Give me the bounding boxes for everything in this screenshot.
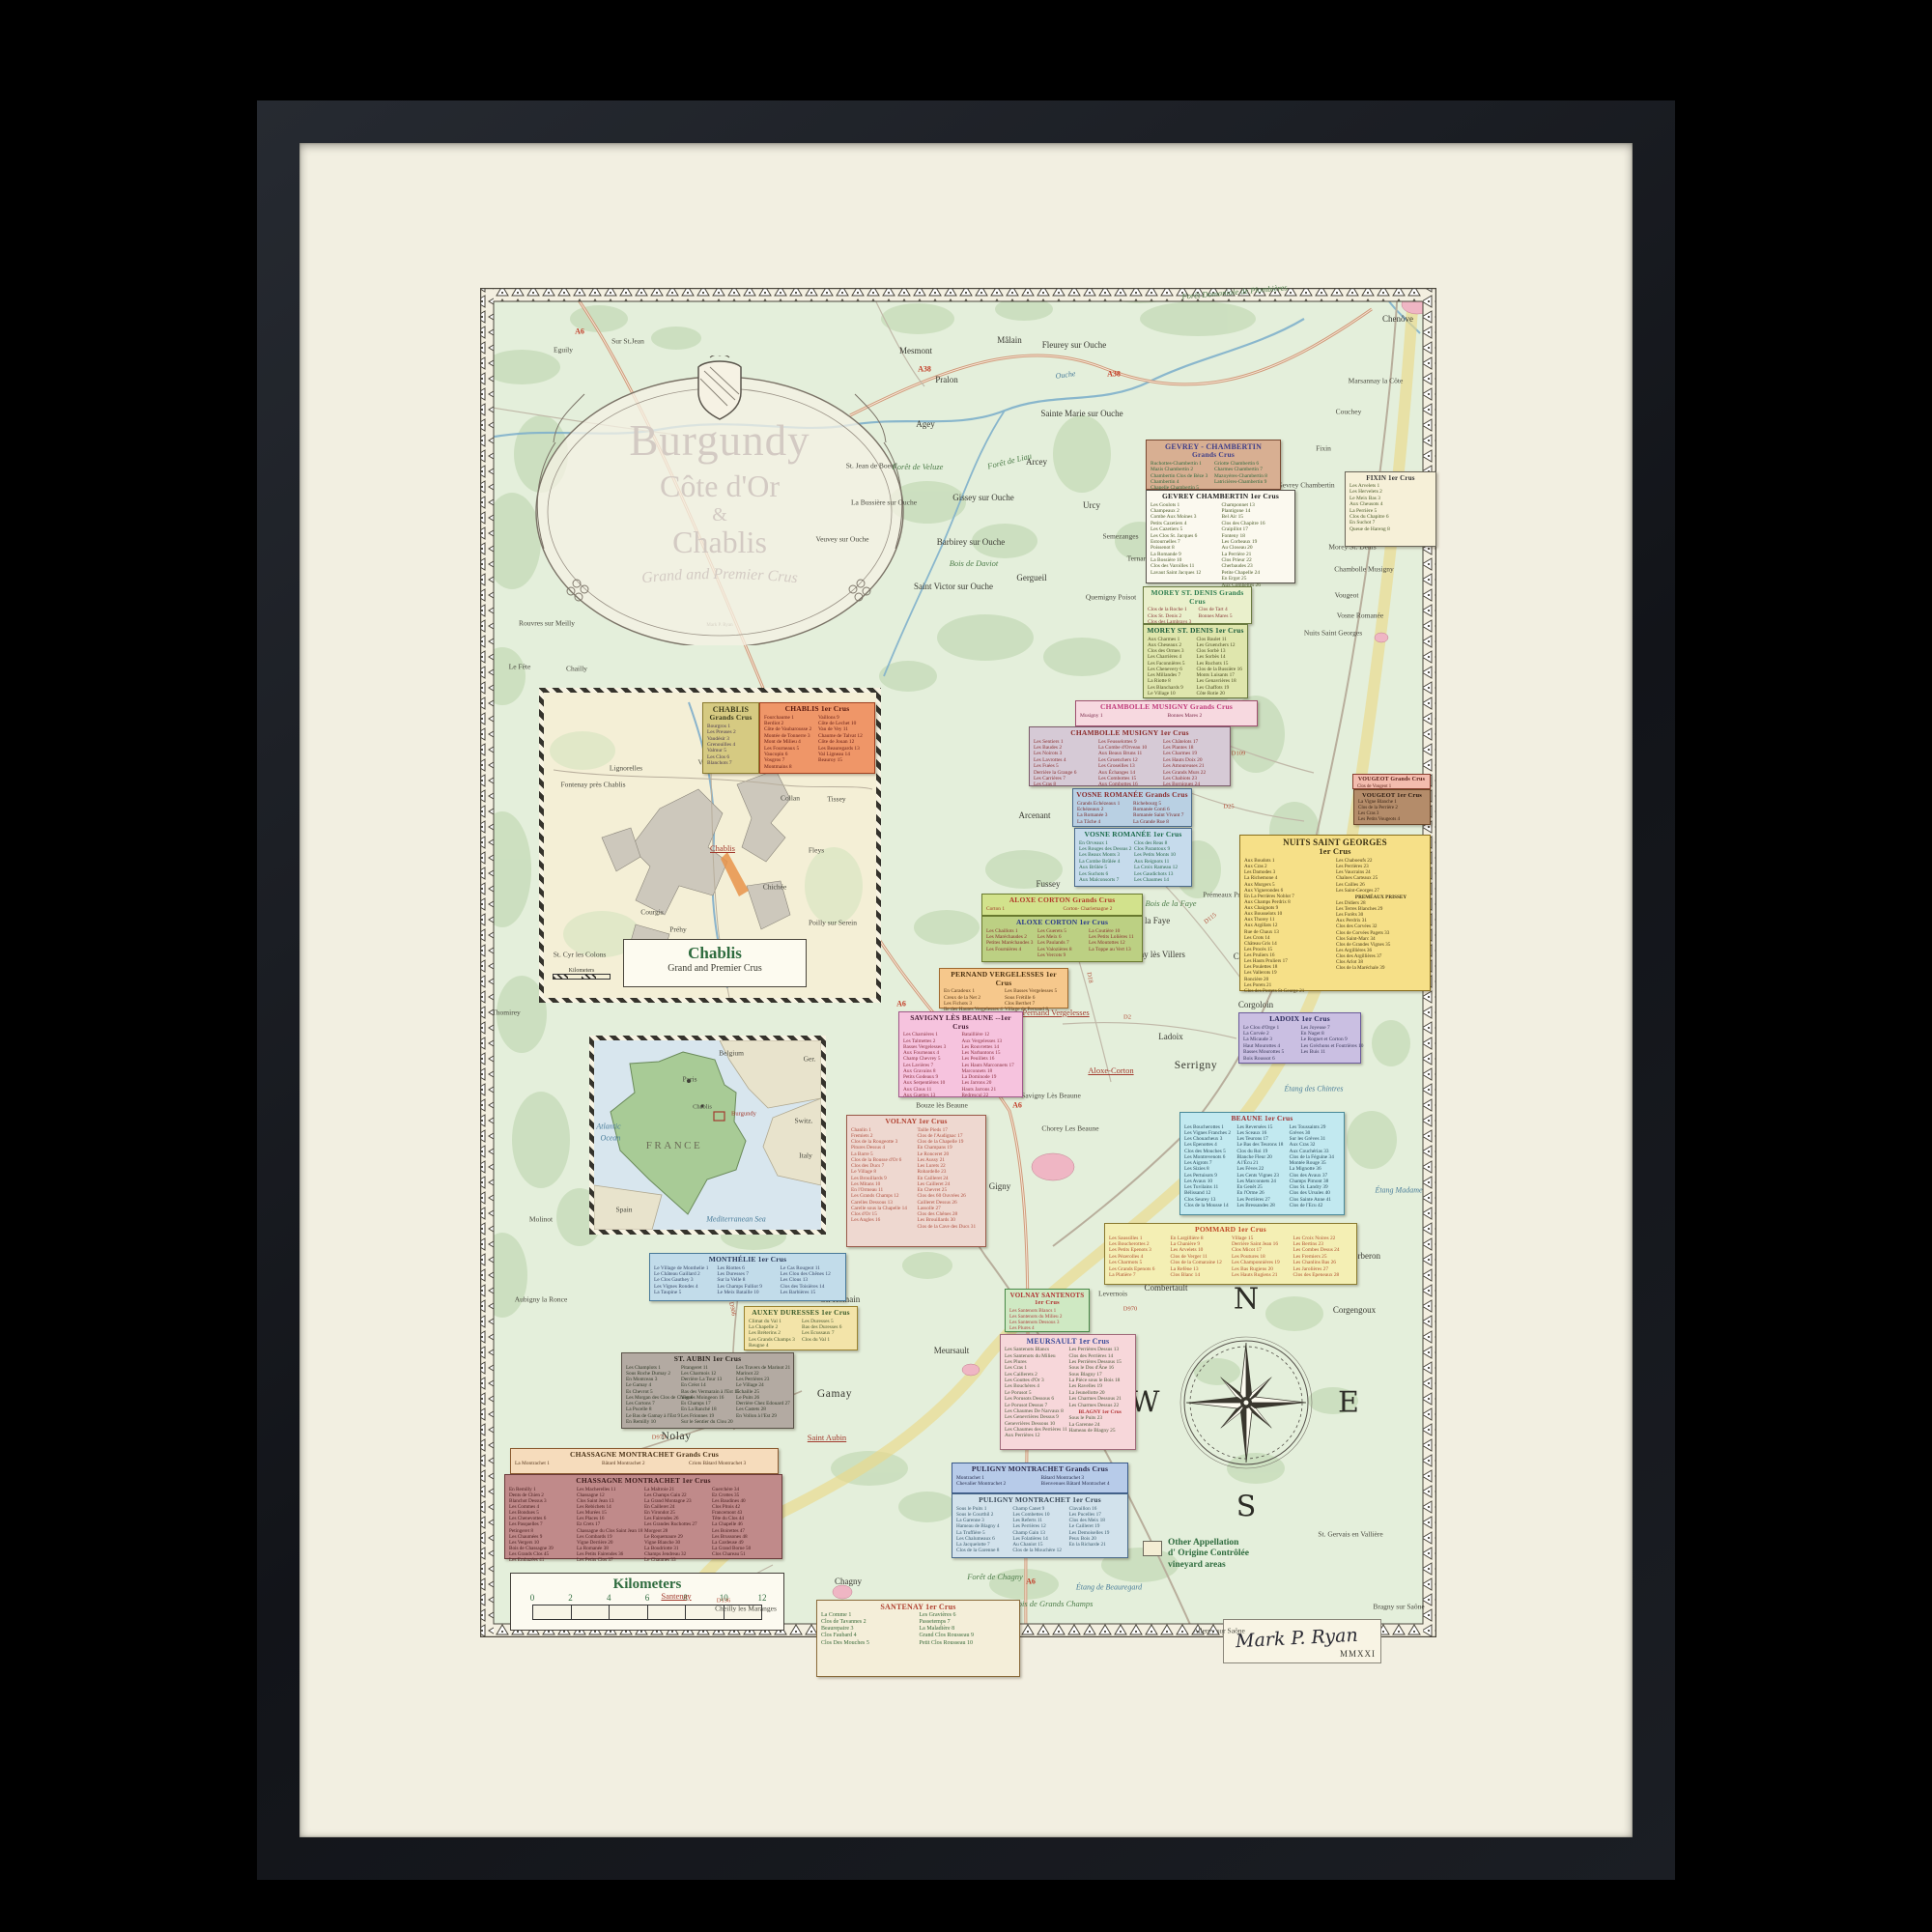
- cru-box-savigny-les-beaune-1er-crus: SAVIGNY LÈS BEAUNE --1er CrusLes Charniè…: [898, 1011, 1023, 1097]
- cru-box-beaune-1er-crus: BEAUNE 1er CrusLes Boucherottes 1Les Vig…: [1179, 1112, 1345, 1215]
- cru-entry: Corton- Charlemagne 2: [1064, 906, 1139, 912]
- cru-entry: Bois Roussot 6: [1243, 1056, 1299, 1062]
- cru-entry: La Platière 7: [1109, 1272, 1169, 1278]
- cru-entry: Queue de Hareng 8: [1350, 526, 1432, 532]
- cru-entry: Les Borniques 24: [1163, 781, 1226, 787]
- cru-entry: Les Saint-Georges 27: [1336, 888, 1426, 894]
- cru-box-meursault-1er-crus: MEURSAULT 1er CrusLes Santenots BlancsLe…: [1000, 1334, 1136, 1450]
- cru-box-title: BEAUNE 1er Crus: [1183, 1115, 1341, 1123]
- cru-box-gevrey-chambertin-1er-crus: GEVREY CHAMBERTIN 1er CrusLes Goulots 1C…: [1146, 490, 1295, 583]
- cru-box-aloxe-corton-grands-crus: ALOXE CORTON Grands CrusCorton 1Corton- …: [981, 894, 1143, 916]
- cru-entry: Aux Combottes 16: [1098, 781, 1161, 787]
- cru-entry: Les Charmes Dessus 22: [1069, 1403, 1132, 1408]
- cru-box-title: PULIGNY MONTRACHET Grands Crus: [955, 1465, 1124, 1474]
- cru-box-title: FIXIN 1er Crus: [1349, 474, 1433, 482]
- cru-box-auxey-duresses-1er-crus: AUXEY DURESSES 1er CrusClimat du Val 1La…: [744, 1306, 858, 1350]
- cru-box-title: ST. AUBIN 1er Crus: [625, 1355, 790, 1364]
- cru-box-fixin-1er-crus: FIXIN 1er CrusLes Arvelets 1Les Hervelet…: [1345, 471, 1436, 547]
- cru-entry: Hameau de Blagny 25: [1069, 1428, 1132, 1434]
- cru-box-chassagne-montrachet-1er-crus: CHASSAGNE MONTRACHET 1er CrusEn Remilly …: [504, 1474, 782, 1559]
- cru-entry: Clos de la Garenne 8: [956, 1548, 1010, 1553]
- cru-boxes-layer: CHABLISGrands CrusBourgros 1Les Preuses …: [0, 0, 1932, 1932]
- cru-box-volnay-santenots-1er-crus: VOLNAY SANTENOTS1er CrusLes Santenots Bl…: [1005, 1289, 1090, 1332]
- cru-box-subtitle: 1er Crus: [1009, 1299, 1086, 1306]
- cru-entry: Bâtard Montrachet 2: [602, 1461, 687, 1466]
- cru-box-aloxe-corton-1er-crus: ALOXE CORTON 1er CrusLes Chaillots 1Les …: [981, 916, 1143, 962]
- cru-entry: Le Village 10: [1148, 691, 1195, 696]
- cru-entry: Blanchots 7: [707, 760, 754, 766]
- cru-entry: Les Genavrières 18: [1197, 678, 1244, 684]
- cru-entry: La Toppe au Vert 13: [1089, 947, 1138, 952]
- cru-entry: Clos du Val 1: [802, 1337, 853, 1343]
- cru-entry: Sur le Sentier du Clou 20: [681, 1419, 734, 1425]
- cru-entry: Redrescul 22: [962, 1093, 1019, 1098]
- cru-entry: Côte de Vaubarousse 2: [764, 726, 816, 732]
- cru-entry: Les Basses Vergelesses 5: [1005, 988, 1064, 994]
- cru-entry: Clos Chareau 51: [712, 1551, 778, 1557]
- cru-box-title: PULIGNY MONTRACHET 1er Crus: [955, 1496, 1124, 1505]
- cru-box-vosne-romanee-grands-crus: VOSNE ROMANÉE Grands CrusGrands Echézeau…: [1072, 788, 1192, 827]
- cru-box-puligny-montrachet-1er-crus: PULIGNY MONTRACHET 1er CrusSous le Puits…: [952, 1493, 1128, 1558]
- cru-entry: Latricières-Chambertin 9: [1214, 479, 1276, 485]
- cru-box-nuits-saint-georges-1er-crus: NUITS SAINT GEORGES1er CrusAux Boudots 1…: [1239, 835, 1431, 991]
- cru-entry: Les Travers de Marinot 21: [736, 1365, 789, 1371]
- cru-box-title: VOUGEOT 1er Crus: [1357, 792, 1427, 799]
- cru-entry: Aux Guettes 13: [903, 1093, 960, 1098]
- cru-box-title: CHAMBOLLE MUSIGNY 1er Crus: [1033, 729, 1227, 738]
- cru-entry: Clos de la Maréchale 39: [1336, 965, 1426, 971]
- cru-entry: Clos des Porrets St George 21: [1244, 988, 1334, 994]
- cru-entry: Les Plures 4: [1009, 1325, 1085, 1331]
- cru-box-title: CHASSAGNE MONTRACHET Grands Crus: [514, 1451, 775, 1460]
- cru-entry: Les Barbières 15: [781, 1290, 841, 1295]
- cru-entry: Les Vercots 9: [1037, 952, 1087, 958]
- cru-entry: Clos de la Cave des Ducs 31: [918, 1224, 982, 1230]
- cru-box-title: GEVREY CHAMBERTIN 1er Crus: [1150, 493, 1292, 501]
- cru-entry: Aux Perrières 12: [1005, 1433, 1067, 1438]
- cru-entry: En la Richarde 21: [1069, 1542, 1123, 1548]
- cru-box-title: VOSNE ROMANÉE 1er Crus: [1078, 831, 1188, 839]
- cru-entry: Les Genevrières Dessus 9: [1005, 1414, 1067, 1420]
- cru-box-title: VOLNAY 1er Crus: [850, 1118, 982, 1126]
- cru-entry: Clos de la Mousse 14: [1184, 1203, 1235, 1208]
- cru-entry: Beaurepaire 3: [821, 1626, 918, 1633]
- cru-box-title: ALOXE CORTON 1er Crus: [985, 919, 1139, 927]
- cru-box-title: CHAMBOLLE MUSIGNY Grands Crus: [1079, 703, 1254, 712]
- cru-box-puligny-montrachet-grands-crus: PULIGNY MONTRACHET Grands CrusMontrachet…: [952, 1463, 1128, 1493]
- cru-box-title: SAVIGNY LÈS BEAUNE --1er Crus: [902, 1014, 1019, 1031]
- cru-entry: Criots Bâtard Montrachet 3: [689, 1461, 774, 1466]
- cru-entry: La Grande Rue 8: [1133, 819, 1187, 825]
- cru-box-santenay-1er-crus: SANTENAY 1er CrusLa Comme 1Clos de Tavan…: [816, 1600, 1020, 1677]
- cru-entry: Chevalier Montrachet 2: [956, 1481, 1039, 1487]
- cru-entry: Chambertin Clos de Bèze 3: [1151, 473, 1212, 479]
- cru-entry: Grand Clos Rousseau 9: [920, 1633, 1016, 1639]
- cru-box-title: CHASSAGNE MONTRACHET 1er Crus: [508, 1477, 779, 1486]
- cru-box-chassagne-montrachet-grands-crus: CHASSAGNE MONTRACHET Grands CrusLa Montr…: [510, 1448, 779, 1474]
- cru-entry: La Maladière 8: [920, 1626, 1016, 1633]
- cru-entry: La Comme 1: [821, 1612, 918, 1619]
- cru-entry: Les Buis 11: [1301, 1049, 1357, 1055]
- cru-entry: Clos de Tavannes 2: [821, 1619, 918, 1626]
- cru-entry: Romanée Saint Vivant 7: [1133, 812, 1187, 818]
- cru-entry: Reugne 4: [749, 1343, 800, 1349]
- cru-box-st-aubin-1er-crus: ST. AUBIN 1er CrusLes Champlots 1Sous Ro…: [621, 1352, 794, 1429]
- cru-entry: Clos de la Mouchère 12: [1012, 1548, 1066, 1553]
- cru-box-title: MOREY ST. DENIS 1er Crus: [1147, 627, 1244, 636]
- cru-box-morey-st-denis-1er-crus: MOREY ST. DENIS 1er CrusAux Charmes 1Aux…: [1143, 624, 1248, 698]
- cru-entry: En Vollon à l'Est 29: [736, 1413, 789, 1419]
- cru-entry: Clos de la Comaraine 12: [1171, 1260, 1231, 1265]
- cru-entry: Chassagne du Clos Saint Jean 18: [577, 1528, 642, 1534]
- cru-box-title: MONTHÉLIE 1er Crus: [653, 1256, 842, 1264]
- cru-box-title: POMMARD 1er Crus: [1108, 1226, 1353, 1235]
- cru-entry: Clos de l'Ecu 42: [1290, 1203, 1340, 1208]
- cru-box-title: PERNAND VERGELESSES 1er Crus: [943, 971, 1065, 987]
- cru-entry: Corton 1: [986, 906, 1062, 912]
- cru-box-volnay-1er-crus: VOLNAY 1er CrusChanlin 1Fremiets 2Clos d…: [846, 1115, 986, 1247]
- cru-entry: Lavaut Saint Jacques 12: [1151, 570, 1220, 576]
- cru-entry: Beauroy 15: [818, 757, 870, 763]
- cru-box-subtitle: Grands Crus: [706, 714, 755, 723]
- cru-box-subtitle: 1er Crus: [1243, 847, 1427, 857]
- cru-box-pommard-1er-crus: POMMARD 1er CrusLes Saussilles 1Les Bouc…: [1104, 1223, 1357, 1285]
- cru-entry: Aux Malconsorts 7: [1079, 877, 1132, 883]
- cru-entry: Petit Clos Rousseau 10: [920, 1640, 1016, 1647]
- cru-entry: Les Petits Clos 37: [577, 1557, 642, 1563]
- cru-entry: Le Bas de Gamay à l'Est 9: [626, 1413, 679, 1419]
- cru-entry: La Montrachet 1: [515, 1461, 600, 1466]
- cru-box-vougeot-grands-crus: VOUGEOT Grands CrusClos de Vougeot 1: [1352, 774, 1431, 789]
- cru-entry: Les Hauts Rugiens 21: [1232, 1272, 1292, 1278]
- cru-box-chambolle-musigny-1er-crus: CHAMBOLLE MUSIGNY 1er CrusLes Sentiers 1…: [1029, 726, 1231, 786]
- cru-entry: Clos Des Mouches 5: [821, 1640, 918, 1647]
- cru-entry: La Tâche 4: [1077, 819, 1131, 825]
- cru-box-gevrey-chambertin-grands-crus: GEVREY - CHAMBERTINGrands CrusRuchottes-…: [1146, 440, 1281, 490]
- cru-box-monthelie-1er-crus: MONTHÉLIE 1er CrusLe Village de Montheli…: [649, 1253, 846, 1301]
- cru-entry: Petites Maréchaudes 3: [986, 940, 1036, 946]
- cru-box-title: VOUGEOT Grands Crus: [1356, 777, 1427, 783]
- cru-box-title: AUXEY DURESSES 1er Crus: [748, 1309, 854, 1318]
- cru-entry: Bas des Vermarain à l'Est 15: [681, 1389, 734, 1395]
- cru-entry: Montmains 8: [764, 764, 816, 770]
- cru-box-chablis-grands-crus: CHABLISGrands CrusBourgros 1Les Preuses …: [702, 702, 759, 774]
- cru-entry: Le Meix Bataille 10: [717, 1290, 778, 1295]
- cru-entry: Le Chaumes 33: [644, 1557, 710, 1563]
- cru-entry: Mazoyères-Chambertin 8: [1214, 473, 1276, 479]
- cru-box-title: SANTENAY 1er Crus: [820, 1603, 1016, 1611]
- cru-entry: En Remilly 10: [626, 1419, 679, 1425]
- cru-entry: Clos Blanc 14: [1171, 1272, 1231, 1278]
- cru-box-vougeot-1er-crus: VOUGEOT 1er CrusLa Vigne Blanche 1Clos d…: [1353, 789, 1431, 825]
- cru-entry: Clos Faubard 4: [821, 1633, 918, 1639]
- cru-box-pernand-vergelesses-1er-crus: PERNAND VERGELESSES 1er CrusEn Caradeux …: [939, 968, 1068, 1009]
- cru-entry: Côte Rotie 20: [1197, 691, 1244, 696]
- cru-entry: Le Bas des Teurons 18: [1236, 1142, 1287, 1148]
- cru-box-title: ALOXE CORTON Grands Crus: [985, 896, 1139, 905]
- cru-box-title: VOSNE ROMANÉE Grands Crus: [1076, 791, 1188, 800]
- cru-entry: Les Embazées 41: [509, 1557, 575, 1563]
- cru-box-title: MEURSAULT 1er Crus: [1004, 1337, 1132, 1346]
- framed-map-poster: Burgundy Côte d'Or & Chablis Grand and P…: [0, 0, 1932, 1932]
- cru-box-chambolle-musigny-grands-crus: CHAMBOLLE MUSIGNY Grands CrusMusigny 1Bo…: [1075, 700, 1258, 726]
- cru-entry: Bienvenues Bâtard Montrachet 4: [1041, 1481, 1124, 1487]
- cru-box-morey-st-denis-grands-crus: MOREY ST. DENIS Grands CrusClos de la Ro…: [1143, 586, 1252, 624]
- cru-entry: Bonnes Mares 2: [1168, 713, 1254, 719]
- cru-entry: Passetemps 7: [920, 1619, 1016, 1626]
- cru-box-subtitle: Grands Crus: [1150, 451, 1277, 460]
- cru-box-title: VOLNAY SANTENOTS: [1009, 1292, 1086, 1299]
- cru-box-title: MOREY ST. DENIS Grands Crus: [1147, 589, 1248, 606]
- cru-entry: Les Fournières 4: [986, 947, 1036, 952]
- cru-entry: Clos des Epeneaux 28: [1293, 1272, 1353, 1278]
- cru-entry: Bonnes Mares 5: [1199, 613, 1248, 619]
- cru-box-vosne-romanee-1er-crus: VOSNE ROMANÉE 1er CrusEn Orveaux 1Les Ro…: [1074, 828, 1192, 887]
- cru-entry: Les Gravières 6: [920, 1612, 1016, 1619]
- cru-box-title: CHABLIS 1er Crus: [763, 705, 871, 714]
- cru-entry: Les Bressandes 28: [1236, 1203, 1287, 1208]
- cru-entry: Musigny 1: [1080, 713, 1166, 719]
- cru-entry: Les Hauts Marconnets 17: [962, 1063, 1019, 1068]
- cru-entry: Les Petits Vougeots 4: [1358, 817, 1426, 823]
- cru-entry: Les Cras 8: [1034, 781, 1096, 787]
- cru-box-chablis-1er-crus: CHABLIS 1er CrusFourchaume 1Berdiot 2Côt…: [759, 702, 875, 774]
- cru-box-title: LADOIX 1er Crus: [1242, 1015, 1357, 1024]
- cru-box-ladoix-1er-crus: LADOIX 1er CrusLe Clou d'Orge 1La Corvée…: [1238, 1012, 1361, 1064]
- cru-entry: La Taupine 5: [654, 1290, 715, 1295]
- cru-entry: Les Chaumes 14: [1134, 877, 1187, 883]
- cru-entry: Les Angles 16: [851, 1217, 916, 1223]
